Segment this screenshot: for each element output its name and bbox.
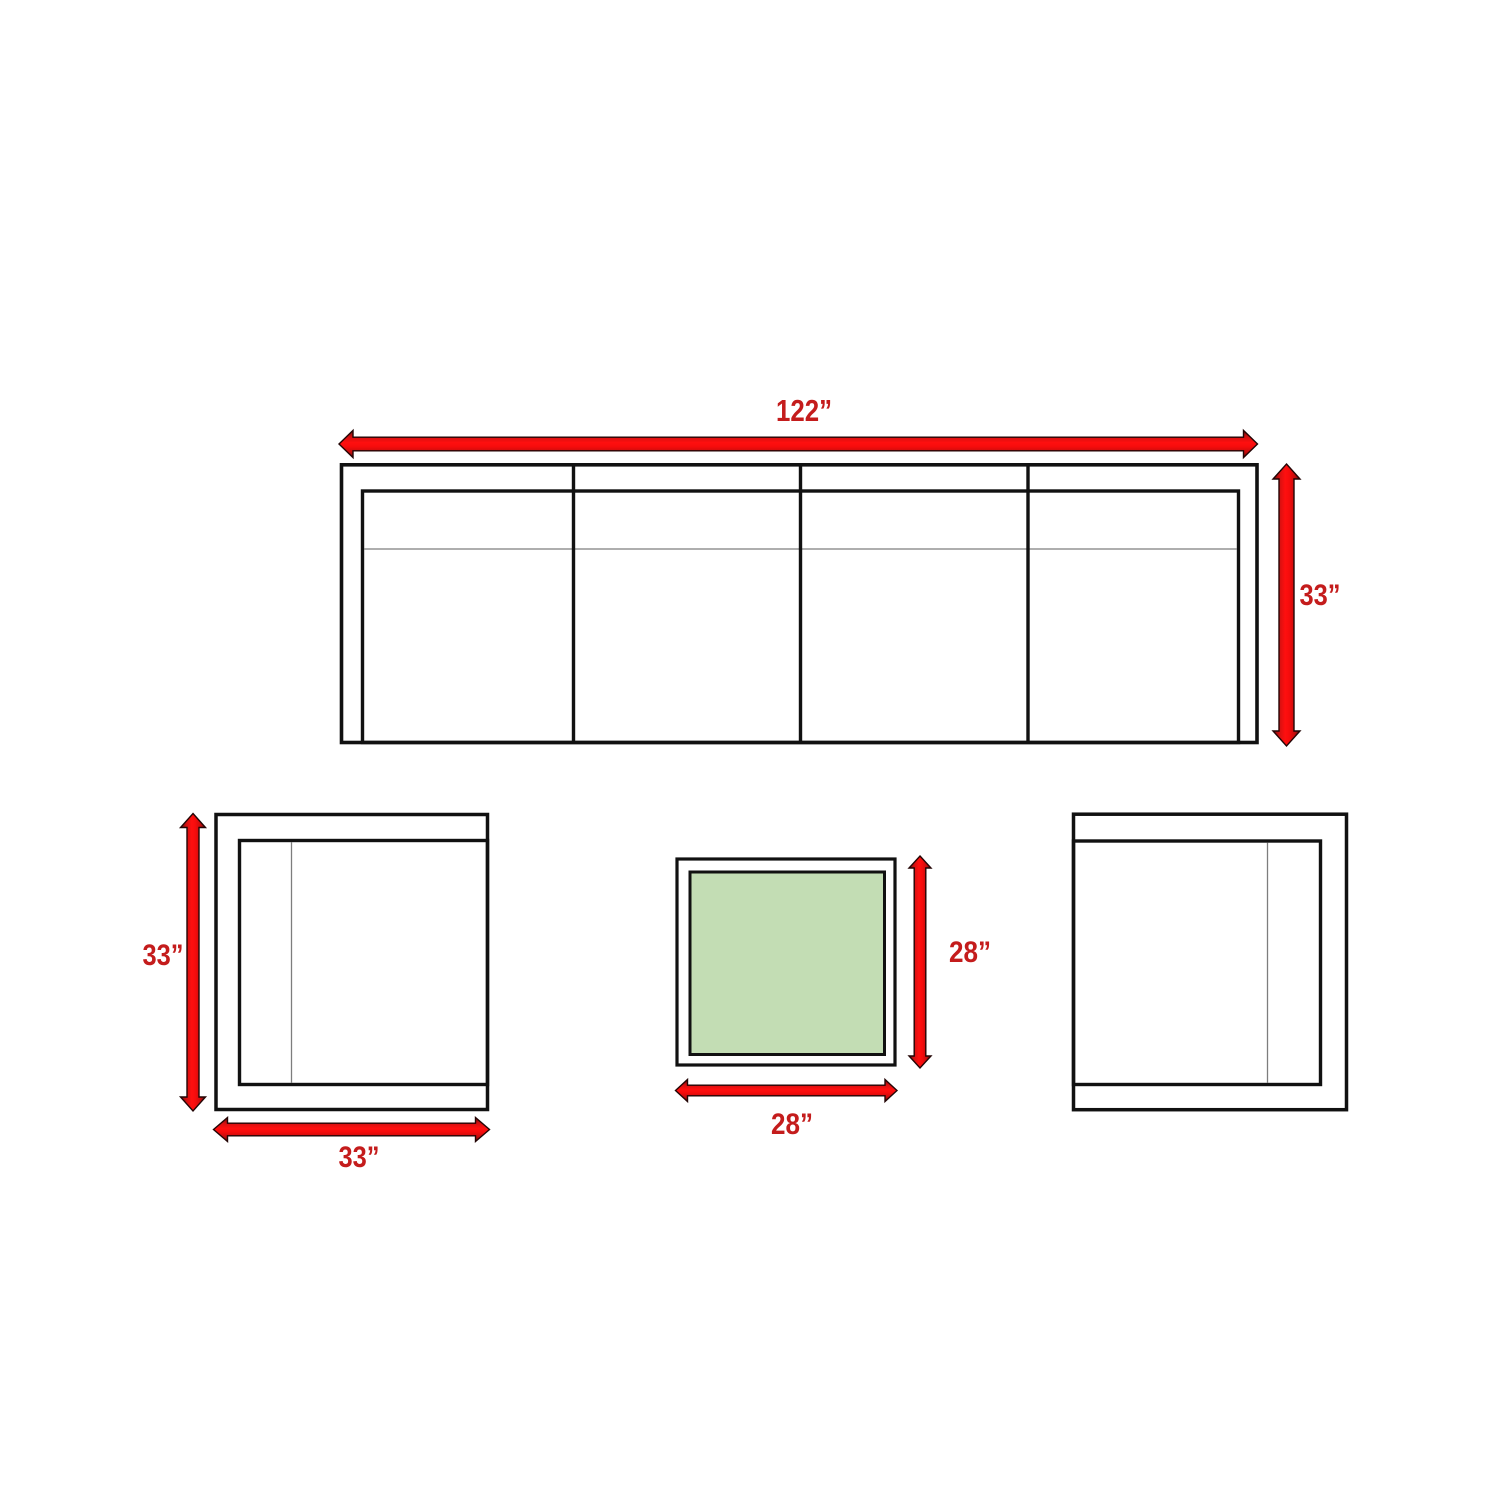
svg-text:33”: 33” [1300,579,1341,612]
svg-text:28”: 28” [949,936,991,969]
svg-text:33”: 33” [339,1141,380,1174]
svg-text:122”: 122” [776,393,832,428]
svg-text:33”: 33” [143,939,184,972]
svg-text:28”: 28” [771,1108,813,1141]
